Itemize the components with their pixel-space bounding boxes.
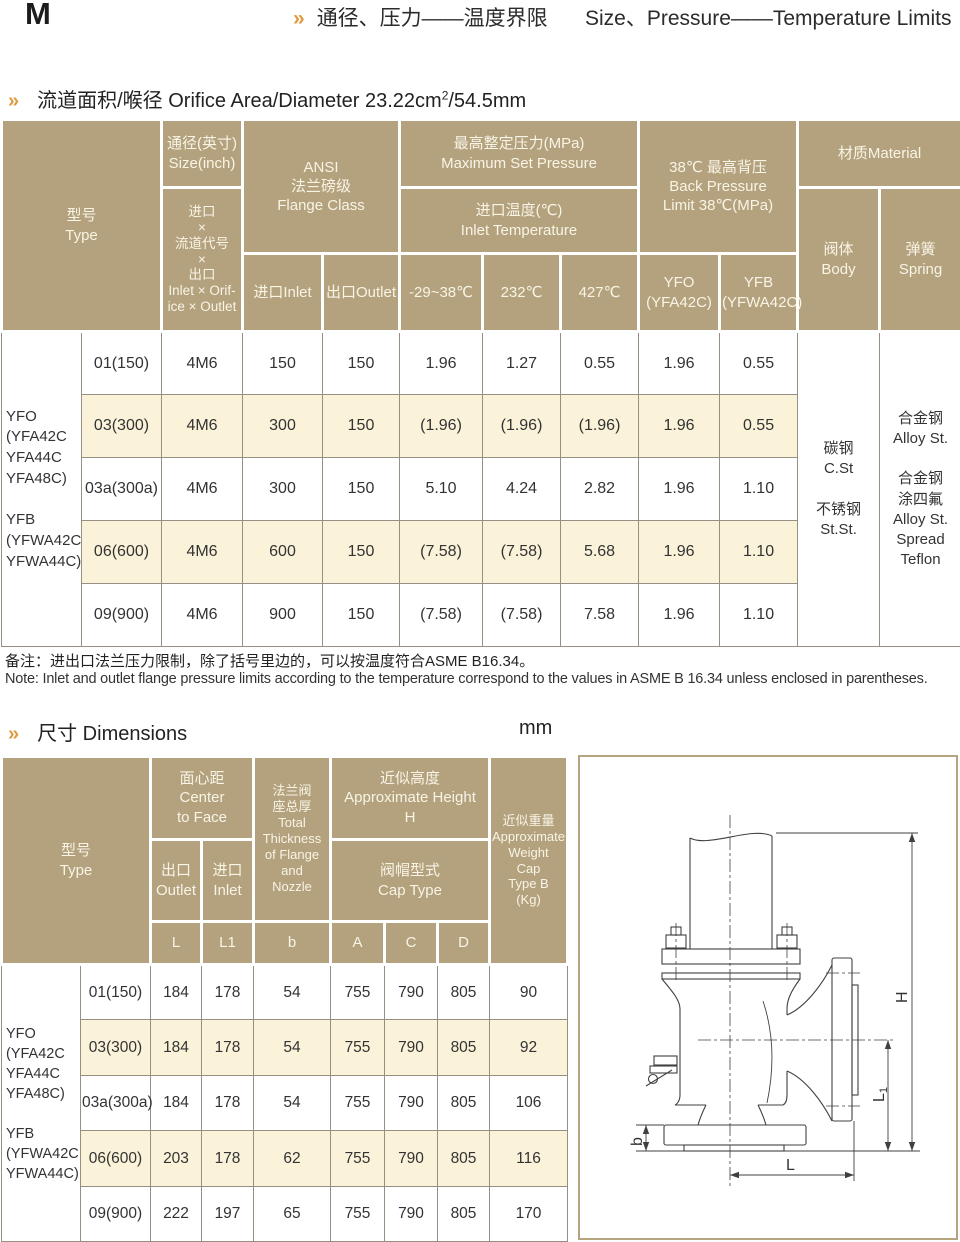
body-right-edge [783, 1071, 787, 1105]
header-cap-type: 阀帽型式 Cap Type [331, 840, 490, 922]
lever-bracket [654, 1056, 677, 1065]
outlet-neck-bottom [787, 1071, 832, 1121]
cell: 790 [385, 965, 438, 1020]
stud-centerlines [676, 923, 787, 983]
cell: 90 [490, 965, 568, 1020]
dimensions-table: 型号 Type 面心距 Center to Face 法兰阀 座总厚 Total… [0, 755, 569, 1242]
header-inlet-temperature: 进口温度(℃) Inlet Temperature [400, 188, 639, 254]
cell: 790 [385, 1076, 438, 1131]
arrowhead [885, 1142, 891, 1151]
arrowhead [909, 1142, 915, 1151]
pressure-temperature-table: 型号 Type 通径(英寸) Size(inch) ANSI 法兰磅级 Flan… [0, 118, 960, 647]
cell: 170 [490, 1187, 568, 1242]
cell: 300 [243, 395, 323, 458]
cell: 805 [438, 1076, 490, 1131]
header-back-pressure: 38℃ 最高背压 Back Pressure Limit 38℃(MPa) [639, 120, 798, 254]
cell: (7.58) [483, 584, 561, 647]
header-inlet: 进口 Inlet [202, 840, 254, 922]
cell: 116 [490, 1131, 568, 1187]
table-row: 09(900) 222 197 65 755 790 805 170 [2, 1187, 568, 1242]
header-center-to-face: 面心距 Center to Face [151, 757, 254, 840]
cell: 805 [438, 965, 490, 1020]
cell: 178 [202, 1020, 254, 1076]
arrowhead [885, 1040, 891, 1049]
header-type: 型号 Type [2, 757, 151, 965]
cell: 1.96 [639, 521, 720, 584]
table-row: 03(300) 184 178 54 755 790 805 92 [2, 1020, 568, 1076]
cell: 184 [151, 965, 202, 1020]
dim-label-L1: L1 [871, 1087, 890, 1102]
cell: 01(150) [82, 332, 162, 395]
cell: 5.10 [400, 458, 483, 521]
page-title-cn: »通径、压力——温度界限 [293, 2, 548, 32]
header-total-thickness: 法兰阀 座总厚 Total Thickness of Flange and No… [254, 757, 331, 922]
header-max-set-pressure: 最高整定压力(MPa) Maximum Set Pressure [400, 120, 639, 188]
cell: 1.10 [720, 584, 798, 647]
arrowhead [909, 833, 915, 842]
type-series-cell: YFO (YFA42C YFA44C YFA48C) YFB (YFWA42C … [2, 965, 81, 1242]
cell: 300 [243, 458, 323, 521]
cell: 150 [243, 332, 323, 395]
cell: 54 [254, 1020, 331, 1076]
cell: 150 [323, 332, 400, 395]
header-letter-D: D [438, 922, 490, 965]
header-yfb: YFB (YFWA42C) [720, 254, 798, 332]
bolt-circle-marks [826, 973, 860, 1106]
cell: 805 [438, 1131, 490, 1187]
cell: 4M6 [162, 458, 243, 521]
cell: 06(600) [82, 521, 162, 584]
cell: 54 [254, 965, 331, 1020]
spring-material-cell: 合金钢 Alloy St. 合金钢 涂四氟 Alloy St. Spread T… [880, 332, 960, 647]
valve-drawing-panel: H L1 b L [578, 755, 958, 1240]
header-body: 阀体 Body [798, 188, 880, 332]
cell: (1.96) [400, 395, 483, 458]
page-title-cn-text: 通径、压力——温度界限 [317, 7, 548, 30]
section1-title: 流道面积/喉径 Orifice Area/Diameter 23.22cm [37, 90, 442, 112]
cell: 09(900) [82, 584, 162, 647]
header-letter-A: A [331, 922, 385, 965]
header-approx-height: 近似高度 Approximate Height H [331, 757, 490, 840]
header-letter-L: L [151, 922, 202, 965]
header-letter-C: C [385, 922, 438, 965]
table-row: YFO (YFA42C YFA44C YFA48C) YFB (YFWA42C … [2, 965, 568, 1020]
inlet-face-plate [684, 1145, 784, 1151]
cell: 150 [323, 458, 400, 521]
cell: 4M6 [162, 584, 243, 647]
inlet-flange [664, 1125, 806, 1145]
cell: 150 [323, 584, 400, 647]
inlet-neck [698, 1105, 766, 1125]
cell: 62 [254, 1131, 331, 1187]
body-left-edge [662, 979, 680, 1105]
cell: 0.55 [561, 332, 639, 395]
section2-heading: »尺寸 Dimensions [8, 717, 187, 746]
cell: 4M6 [162, 395, 243, 458]
cell: 03a(300a) [81, 1076, 151, 1131]
header-flange-outlet: 出口Outlet [323, 254, 400, 332]
cell: 0.55 [720, 395, 798, 458]
header-approx-weight: 近似重量 Approximate Weight Cap Type B (Kg) [490, 757, 568, 965]
pipe-sides [690, 836, 772, 949]
catalog-page: M »通径、压力——温度界限 Size、Pressure——Temperatur… [0, 0, 960, 1242]
chevron-icon: » [8, 90, 19, 112]
cell: 03a(300a) [82, 458, 162, 521]
pipe-break-line [690, 833, 772, 840]
table-row: 06(600) 203 178 62 755 790 805 116 [2, 1131, 568, 1187]
page-title-en: Size、Pressure——Temperature Limits [585, 2, 951, 32]
outlet-flange [832, 958, 852, 1121]
cell: 150 [323, 521, 400, 584]
cell: 1.10 [720, 458, 798, 521]
cell: 805 [438, 1020, 490, 1076]
cell: 197 [202, 1187, 254, 1242]
cell: 5.68 [561, 521, 639, 584]
cell: 203 [151, 1131, 202, 1187]
section1-title-tail: /54.5mm [448, 90, 526, 112]
arrowhead [643, 1125, 649, 1134]
header-flange-inlet: 进口Inlet [243, 254, 323, 332]
unit-label: mm [519, 717, 552, 740]
dim-label-b: b [629, 1137, 646, 1146]
cell: 755 [331, 1131, 385, 1187]
cell: 184 [151, 1076, 202, 1131]
cell: 1.96 [639, 395, 720, 458]
arrowhead [730, 1172, 739, 1178]
cell: 755 [331, 965, 385, 1020]
cell: 1.96 [400, 332, 483, 395]
body-right-shoulder [787, 979, 800, 1015]
cell: (7.58) [400, 521, 483, 584]
header-letter-L1: L1 [202, 922, 254, 965]
cell: 06(600) [81, 1131, 151, 1187]
header-ansi-flange-class: ANSI 法兰磅级 Flange Class [243, 120, 400, 254]
lever-plate [650, 1066, 677, 1073]
body-casting-curve [763, 1001, 772, 1103]
cell: 4.24 [483, 458, 561, 521]
header-outlet: 出口 Outlet [151, 840, 202, 922]
chevron-icon: » [8, 723, 19, 745]
cell: (7.58) [483, 521, 561, 584]
cell: 178 [202, 1076, 254, 1131]
cell: 600 [243, 521, 323, 584]
cell: 900 [243, 584, 323, 647]
cell: 09(900) [81, 1187, 151, 1242]
chevron-icon: » [293, 7, 305, 30]
cell: 01(150) [81, 965, 151, 1020]
header-type: 型号 Type [2, 120, 162, 332]
cell: 222 [151, 1187, 202, 1242]
cell: 1.10 [720, 521, 798, 584]
dim-label-L: L [786, 1157, 795, 1174]
section1-heading: »流道面积/喉径 Orifice Area/Diameter 23.22cm2/… [8, 84, 526, 113]
cell: 755 [331, 1020, 385, 1076]
table-row: 03a(300a) 184 178 54 755 790 805 106 [2, 1076, 568, 1131]
cell: 4M6 [162, 332, 243, 395]
header-size-inch: 通径(英寸) Size(inch) [162, 120, 243, 188]
cell: 184 [151, 1020, 202, 1076]
cell: 790 [385, 1020, 438, 1076]
header-temp-232: 232℃ [483, 254, 561, 332]
cell: 0.55 [720, 332, 798, 395]
cell: 1.96 [639, 332, 720, 395]
cell: 1.96 [639, 584, 720, 647]
body-material-cell: 碳钢 C.St 不锈钢 St.St. [798, 332, 880, 647]
dim-label-H: H [894, 991, 911, 1003]
cell: 2.82 [561, 458, 639, 521]
page-letter: M [25, 0, 52, 32]
section2-title: 尺寸 Dimensions [37, 723, 187, 745]
cell: 1.96 [639, 458, 720, 521]
cell: 65 [254, 1187, 331, 1242]
arrowhead [845, 1172, 854, 1178]
cell: 4M6 [162, 521, 243, 584]
header-letter-b: b [254, 922, 331, 965]
bonnet-gasket [662, 973, 800, 979]
cell: 03(300) [81, 1020, 151, 1076]
header-spring: 弹簧 Spring [880, 188, 960, 332]
cell: 54 [254, 1076, 331, 1131]
cell: 178 [202, 1131, 254, 1187]
header-yfo: YFO (YFA42C) [639, 254, 720, 332]
cell: 790 [385, 1131, 438, 1187]
cell: 7.58 [561, 584, 639, 647]
cell: 106 [490, 1076, 568, 1131]
cell: 1.27 [483, 332, 561, 395]
header-inlet-orifice-outlet: 进口 × 流道代号 × 出口 Inlet × Orif- ice × Outle… [162, 188, 243, 332]
note-cn: 备注：进出口法兰压力限制，除了括号里边的，可以按温度符合ASME B16.34。 [5, 650, 534, 671]
cell: 92 [490, 1020, 568, 1076]
cell: (1.96) [483, 395, 561, 458]
header-material: 材质Material [798, 120, 960, 188]
cell: 805 [438, 1187, 490, 1242]
cell: 03(300) [82, 395, 162, 458]
bonnet-flange [662, 949, 800, 964]
cell: 178 [202, 965, 254, 1020]
cell: (1.96) [561, 395, 639, 458]
cell: 790 [385, 1187, 438, 1242]
cell: (7.58) [400, 584, 483, 647]
type-series-cell: YFO (YFA42C YFA44C YFA48C) YFB (YFWA42C … [2, 332, 82, 647]
note-en: Note: Inlet and outlet flange pressure l… [5, 671, 928, 687]
cell: 150 [323, 395, 400, 458]
table-row: YFO (YFA42C YFA44C YFA48C) YFB (YFWA42C … [2, 332, 960, 395]
header-temp-38: -29~38℃ [400, 254, 483, 332]
valve-outline-drawing: H L1 b L [580, 757, 956, 1238]
header-temp-427: 427℃ [561, 254, 639, 332]
cell: 755 [331, 1187, 385, 1242]
cell: 755 [331, 1076, 385, 1131]
